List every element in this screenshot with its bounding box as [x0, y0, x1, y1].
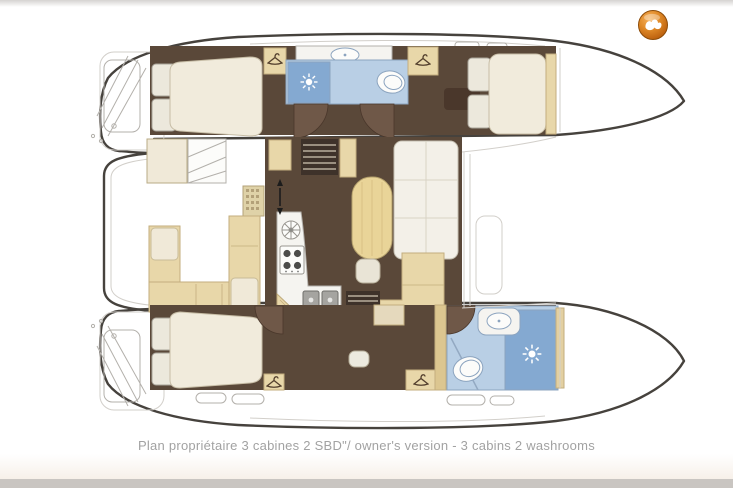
floor-plan-svg [0, 0, 733, 488]
wardrobe [264, 48, 286, 74]
stool [356, 259, 380, 283]
double-bed [170, 57, 262, 136]
double-bed [170, 312, 262, 388]
cockpit [147, 139, 264, 312]
bulkhead [435, 305, 446, 390]
helm-steps [188, 139, 226, 183]
bottom-frame-bar [0, 479, 733, 488]
owner-washroom [435, 305, 564, 390]
pillow [468, 58, 491, 91]
owner-hull-interior [150, 305, 564, 390]
bottom-fade-band [0, 454, 733, 479]
shower-rose-icon [301, 74, 318, 91]
double-bed [489, 54, 546, 134]
wardrobe [408, 47, 438, 75]
helm-cabinet [147, 139, 187, 183]
round-burner [282, 221, 300, 239]
grid-mat [243, 186, 264, 216]
page: { "window": { "width": 733, "height": 48… [0, 0, 733, 488]
port-hull-interior [150, 46, 560, 138]
broker-logo [639, 11, 668, 40]
wardrobe [406, 370, 436, 390]
seat [349, 351, 369, 367]
cabinet [269, 140, 291, 170]
cabinet [340, 139, 356, 177]
stove-burners [280, 246, 304, 274]
cushion [151, 228, 178, 260]
headboard [546, 54, 556, 134]
saloon [265, 137, 462, 330]
plan-caption: Plan propriétaire 3 cabines 2 SBD"/ owne… [0, 438, 733, 453]
companionway-steps-port [301, 139, 338, 175]
cockpit-settee [149, 216, 260, 312]
foredeck-locker [476, 216, 502, 294]
foredeck [462, 137, 556, 308]
vanity-desk [374, 305, 404, 325]
shower-rose-icon [523, 345, 542, 364]
port-aft-cabin [152, 57, 262, 136]
pillow [468, 95, 491, 128]
